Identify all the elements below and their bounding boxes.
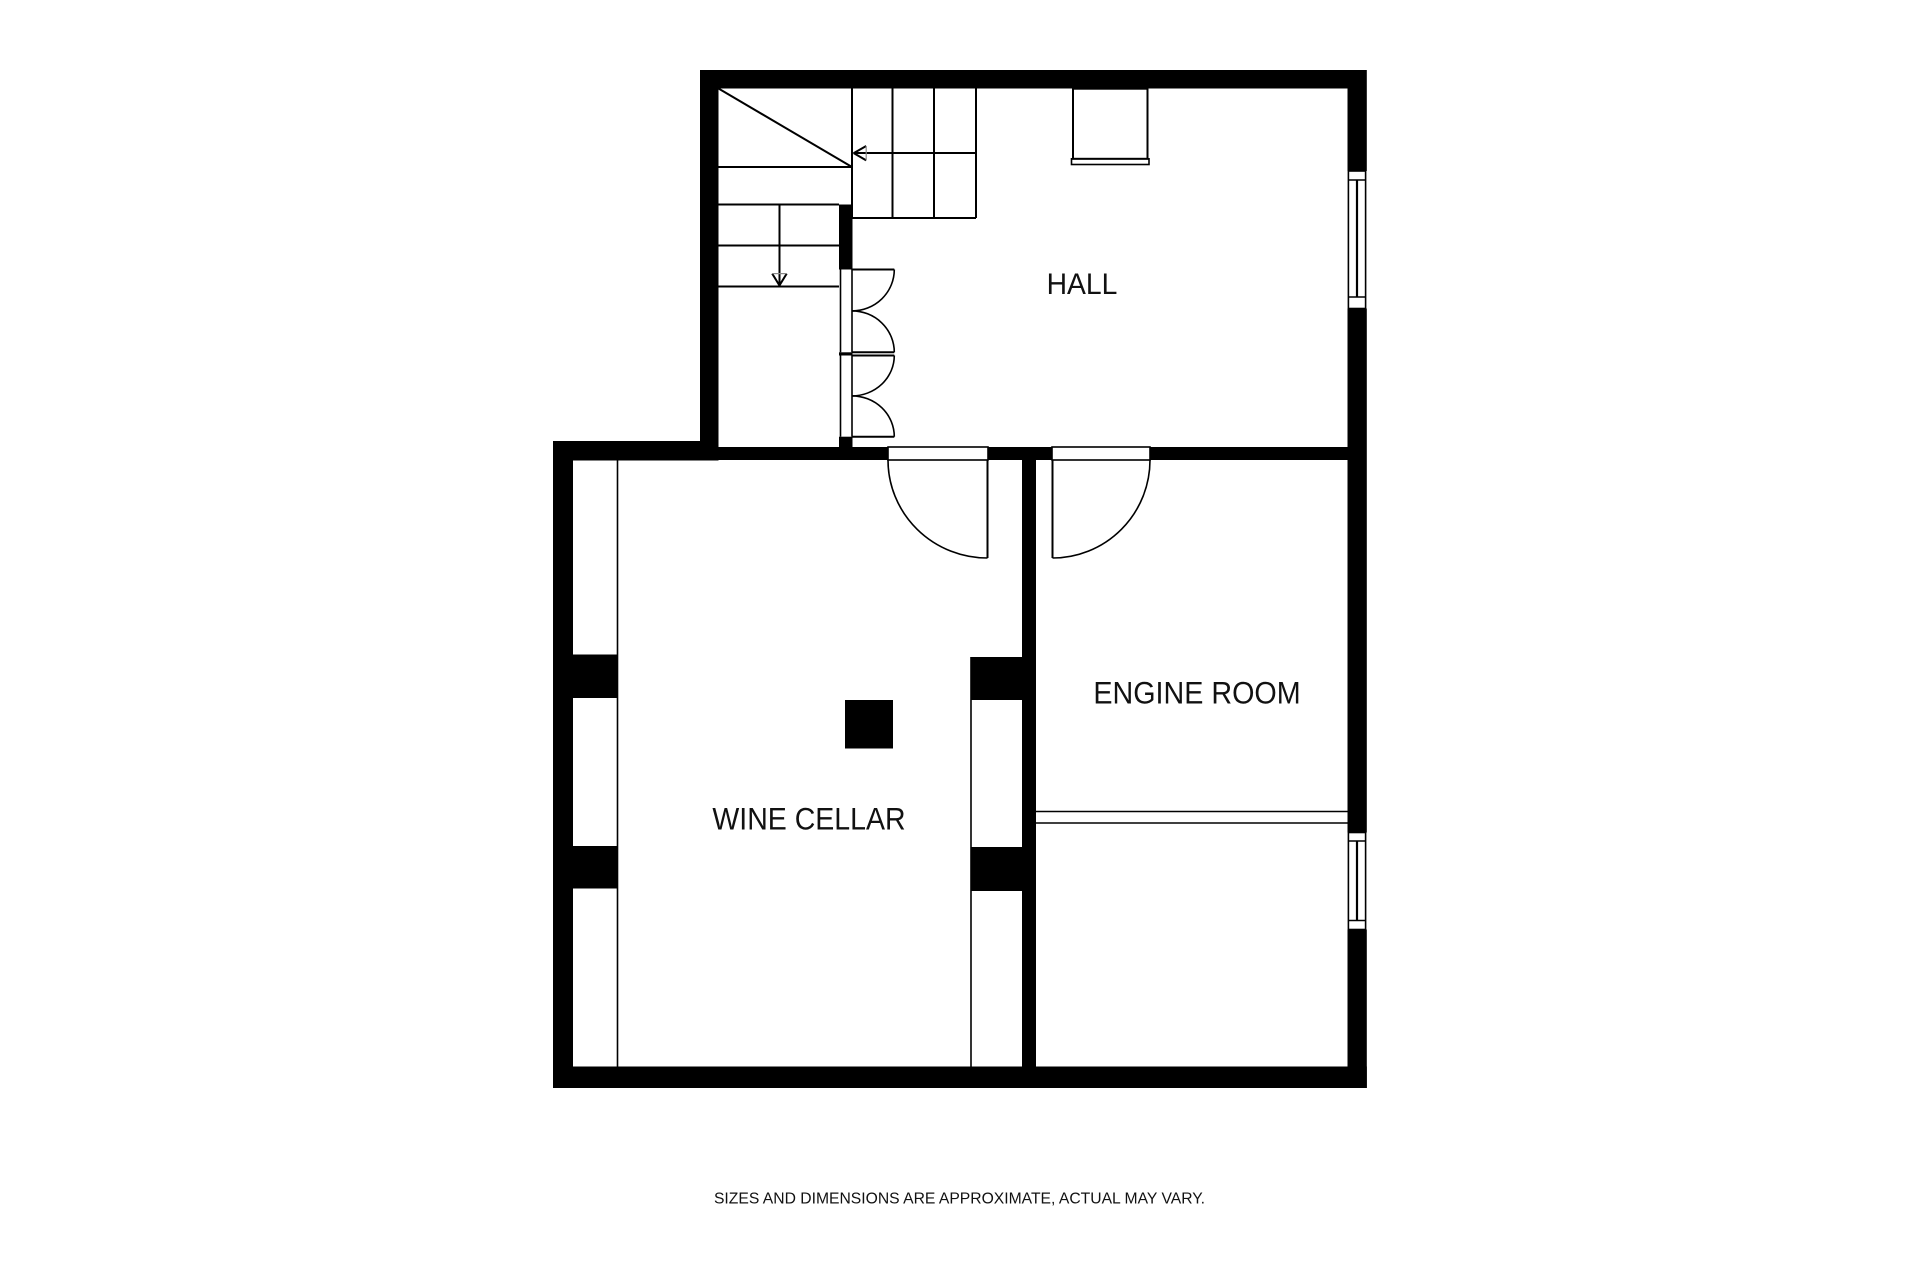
svg-text:HALL: HALL — [1047, 268, 1118, 301]
svg-text:ENGINE ROOM: ENGINE ROOM — [1093, 676, 1300, 710]
svg-text:WINE CELLAR: WINE CELLAR — [712, 802, 905, 837]
svg-text:SIZES AND DIMENSIONS ARE APPRO: SIZES AND DIMENSIONS ARE APPROXIMATE, AC… — [714, 1190, 1205, 1207]
